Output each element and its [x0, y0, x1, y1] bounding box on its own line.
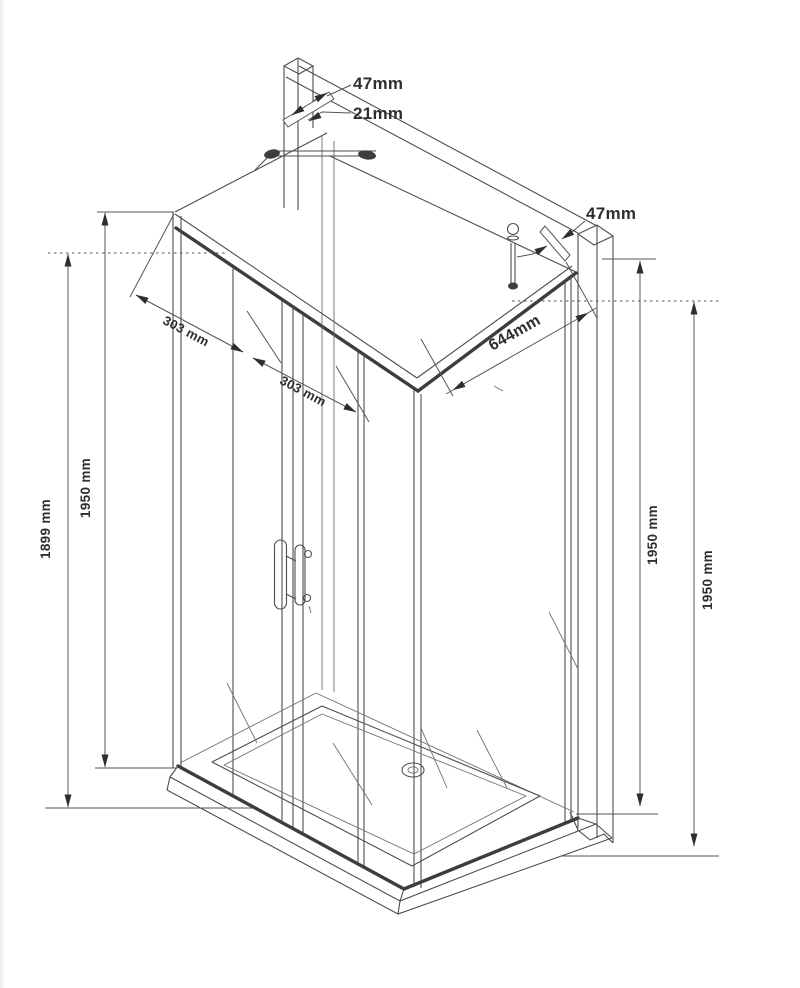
- shower-enclosure-drawing: 47mm 21mm 47mm 644mm 303 mm 303 mm 1: [0, 0, 800, 988]
- label-height-right-wall: 1950 mm: [700, 550, 715, 610]
- dimension-door-right: 303 mm: [247, 311, 369, 422]
- dimension-top-profile-width: 21mm: [308, 104, 403, 123]
- label-height-right-front: 1950 mm: [645, 505, 660, 565]
- dimension-height-right-front: 1950 mm: [576, 259, 660, 814]
- label-top-profile-depth: 47mm: [353, 74, 403, 93]
- label-height-glass: 1899 mm: [38, 499, 53, 559]
- shower-tray: [167, 693, 612, 914]
- enclosure-frame: [173, 66, 597, 888]
- screw-icon: [508, 224, 519, 290]
- sliding-doors: [233, 267, 364, 867]
- technical-drawing-page: 47mm 21mm 47mm 644mm 303 mm 303 mm 1: [0, 0, 800, 988]
- label-top-profile-width: 21mm: [353, 104, 403, 123]
- label-door-left: 303 mm: [160, 313, 211, 350]
- dimension-height-glass: 1899 mm: [38, 253, 252, 808]
- dimension-height-left: 1950 mm: [78, 212, 176, 768]
- dimension-height-right-wall: 1950 mm: [512, 301, 719, 856]
- glass-reflection-ticks: [227, 386, 578, 805]
- label-height-left: 1950 mm: [78, 458, 93, 518]
- wall-profile-right: [565, 225, 613, 843]
- label-right-profile-depth: 47mm: [586, 204, 636, 223]
- wall-profile-top: [284, 58, 313, 210]
- support-bar: [255, 148, 377, 170]
